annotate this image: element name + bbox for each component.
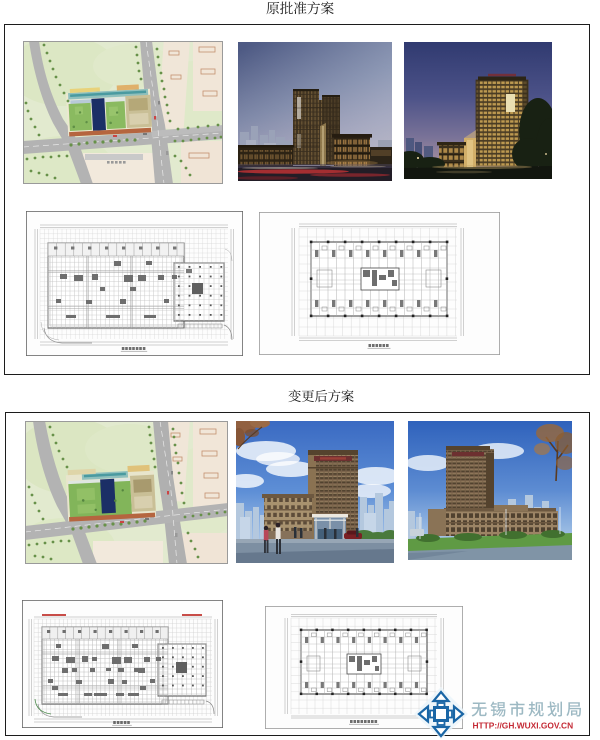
svg-text:HTTP://GH.WUXI.GOV.CN: HTTP://GH.WUXI.GOV.CN	[473, 721, 574, 731]
